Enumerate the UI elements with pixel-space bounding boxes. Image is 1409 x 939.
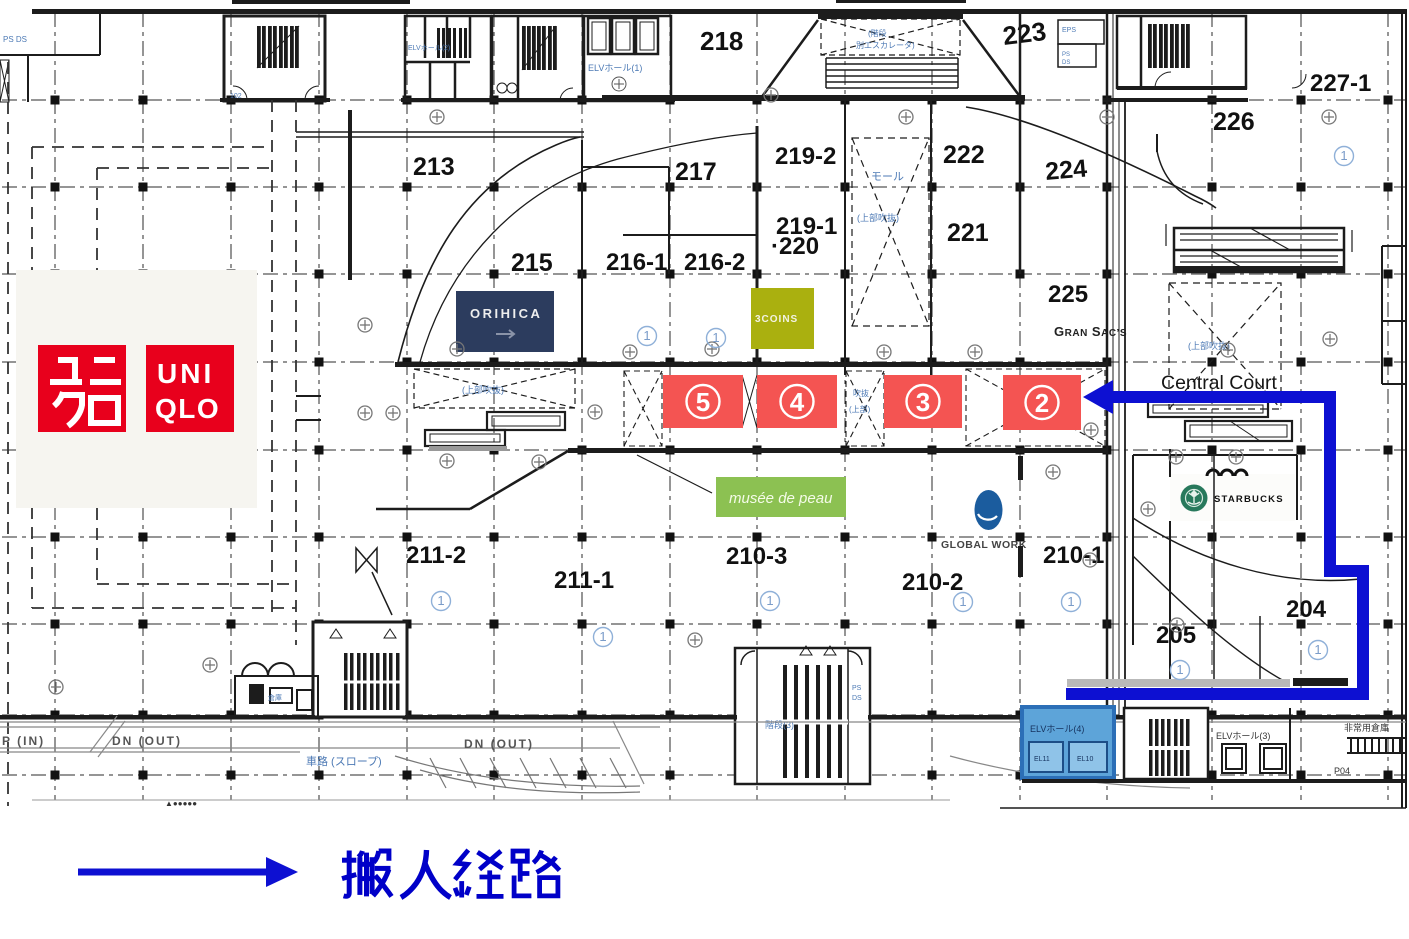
svg-text:3COINS: 3COINS — [755, 314, 798, 325]
svg-text:(上部吹抜): (上部吹抜) — [857, 212, 899, 223]
svg-text:221: 221 — [947, 219, 989, 247]
svg-text:PS DS: PS DS — [3, 35, 27, 44]
svg-text:EL10: EL10 — [1077, 756, 1093, 763]
svg-text:204: 204 — [1286, 596, 1327, 623]
svg-text:別エスカレータ): 別エスカレータ) — [856, 41, 915, 50]
svg-text:210-3: 210-3 — [726, 543, 787, 570]
svg-text:215: 215 — [511, 249, 553, 277]
svg-text:PS: PS — [852, 685, 862, 692]
svg-text:224: 224 — [1044, 154, 1088, 186]
svg-text:1: 1 — [766, 593, 773, 608]
svg-text:P04: P04 — [1334, 766, 1350, 776]
svg-text:1: 1 — [1314, 642, 1321, 657]
svg-text:102: 102 — [230, 93, 242, 100]
svg-text:P (IN): P (IN) — [2, 734, 45, 748]
svg-text:ELVホール(1): ELVホール(1) — [588, 63, 642, 73]
svg-text:DN (OUT): DN (OUT) — [112, 734, 182, 748]
svg-text:226: 226 — [1213, 108, 1255, 136]
svg-text:4: 4 — [790, 387, 805, 417]
svg-text:DS: DS — [1062, 60, 1070, 66]
svg-text:非常用倉庫: 非常用倉庫 — [1344, 722, 1389, 733]
svg-text:GLOBAL WORK: GLOBAL WORK — [941, 539, 1027, 551]
svg-text:211-1: 211-1 — [554, 567, 614, 594]
svg-text:ORIHICA: ORIHICA — [470, 306, 542, 321]
svg-text:(階段: (階段 — [868, 28, 887, 38]
svg-text:·220: ·220 — [771, 233, 819, 260]
svg-text:(上部): (上部) — [849, 404, 871, 414]
svg-text:219-2: 219-2 — [775, 143, 836, 170]
svg-text:223: 223 — [1001, 16, 1048, 51]
svg-text:QLO: QLO — [155, 393, 220, 424]
svg-text:UNI: UNI — [157, 358, 214, 389]
svg-text:222: 222 — [943, 141, 985, 169]
svg-text:EL11: EL11 — [1034, 756, 1050, 763]
svg-text:1: 1 — [1340, 148, 1347, 163]
svg-text:205: 205 — [1156, 622, 1196, 649]
svg-text:(上部吹抜): (上部吹抜) — [462, 384, 504, 395]
svg-text:musée de peau: musée de peau — [729, 490, 833, 507]
svg-text:EPS: EPS — [1062, 27, 1076, 34]
svg-text:Central Court: Central Court — [1161, 372, 1278, 394]
svg-text:DN (OUT): DN (OUT) — [464, 737, 534, 751]
svg-text:216-1: 216-1 — [606, 249, 667, 276]
svg-text:モール: モール — [871, 171, 904, 183]
svg-text:階段(3): 階段(3) — [765, 719, 794, 730]
svg-text:1: 1 — [1176, 662, 1183, 677]
svg-text:1: 1 — [599, 629, 606, 644]
svg-text:倉庫: 倉庫 — [268, 693, 282, 702]
svg-text:3: 3 — [916, 387, 930, 417]
svg-text:PS: PS — [1062, 52, 1070, 58]
svg-text:213: 213 — [413, 153, 455, 181]
svg-text:218: 218 — [700, 26, 743, 56]
svg-text:車路 (スロープ): 車路 (スロープ) — [306, 754, 382, 768]
svg-text:STARBUCKS: STARBUCKS — [1214, 494, 1284, 505]
svg-text:1: 1 — [437, 593, 444, 608]
svg-text:225: 225 — [1048, 281, 1088, 308]
svg-text:5: 5 — [696, 387, 710, 417]
svg-text:DS: DS — [852, 695, 862, 702]
svg-text:1: 1 — [959, 594, 966, 609]
svg-text:210-2: 210-2 — [902, 569, 963, 596]
svg-text:1: 1 — [1067, 594, 1074, 609]
svg-text:216-2: 216-2 — [684, 249, 745, 276]
svg-text:217: 217 — [675, 158, 717, 186]
svg-text:吹抜: 吹抜 — [853, 388, 869, 398]
svg-text:ELVホール(3): ELVホール(3) — [1216, 731, 1270, 741]
svg-text:2: 2 — [1035, 388, 1049, 418]
svg-text:1: 1 — [643, 328, 650, 343]
svg-text:211-2: 211-2 — [406, 542, 466, 569]
svg-text:1: 1 — [712, 330, 719, 345]
svg-text:ELVホール(2): ELVホール(2) — [408, 44, 450, 52]
svg-text:ELVホール(4): ELVホール(4) — [1030, 724, 1084, 734]
svg-text:227-1: 227-1 — [1310, 70, 1371, 97]
